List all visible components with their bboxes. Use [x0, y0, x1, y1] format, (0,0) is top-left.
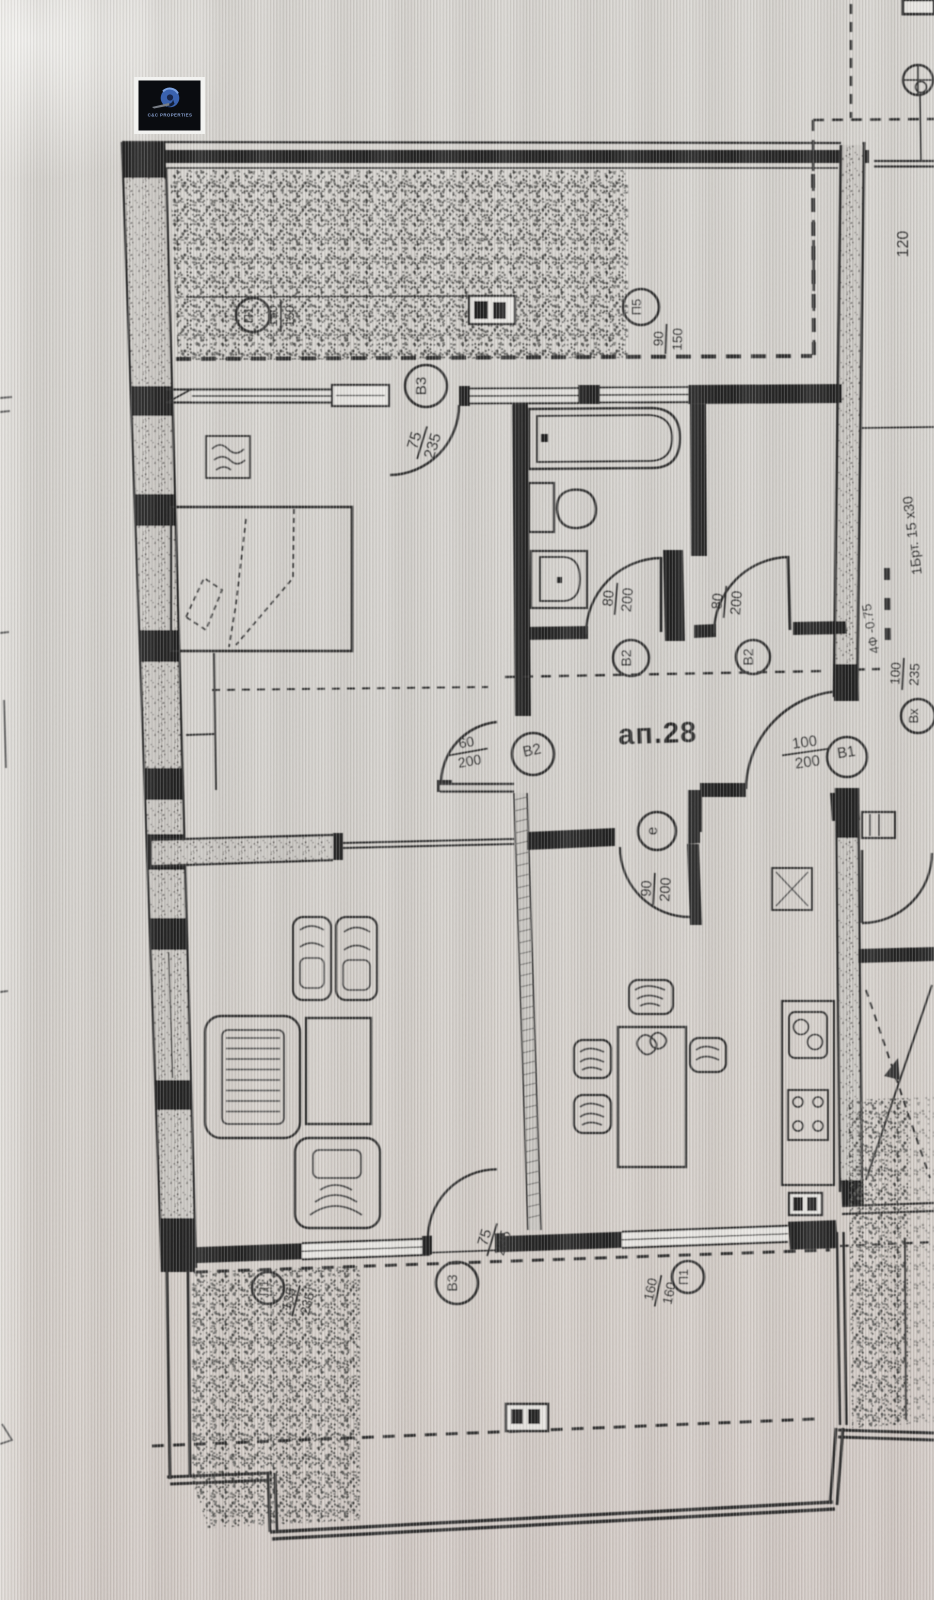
svg-text:C&C PROPERTIES: C&C PROPERTIES — [148, 113, 193, 118]
